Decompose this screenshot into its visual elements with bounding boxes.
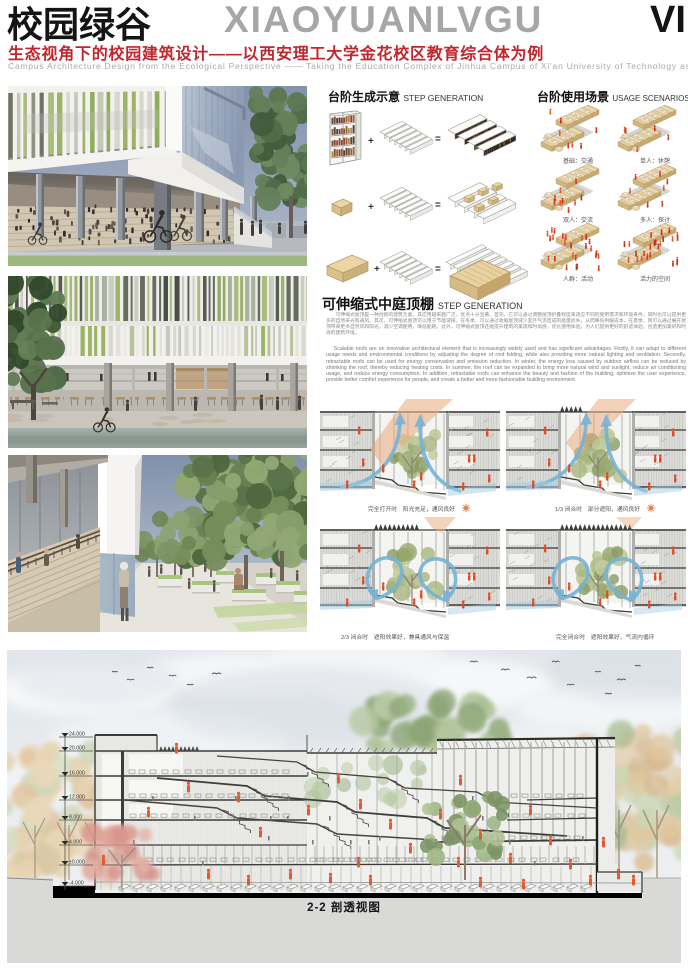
svg-text:+: + [368,136,374,147]
svg-text:12.000: 12.000 [69,795,85,801]
svg-text:+: + [368,202,374,213]
svg-text:=: = [435,264,441,275]
svg-text:=: = [435,200,441,211]
svg-text:+: + [374,264,380,275]
svg-text:24.000: 24.000 [69,732,85,738]
svg-text:=: = [435,134,441,145]
svg-text:±0.000: ±0.000 [69,860,85,866]
svg-text:4.000: 4.000 [69,840,82,846]
svg-text:-4.000: -4.000 [69,881,84,887]
svg-text:8.000: 8.000 [69,815,82,821]
svg-text:16.000: 16.000 [69,771,85,777]
svg-text:20.000: 20.000 [69,746,85,752]
